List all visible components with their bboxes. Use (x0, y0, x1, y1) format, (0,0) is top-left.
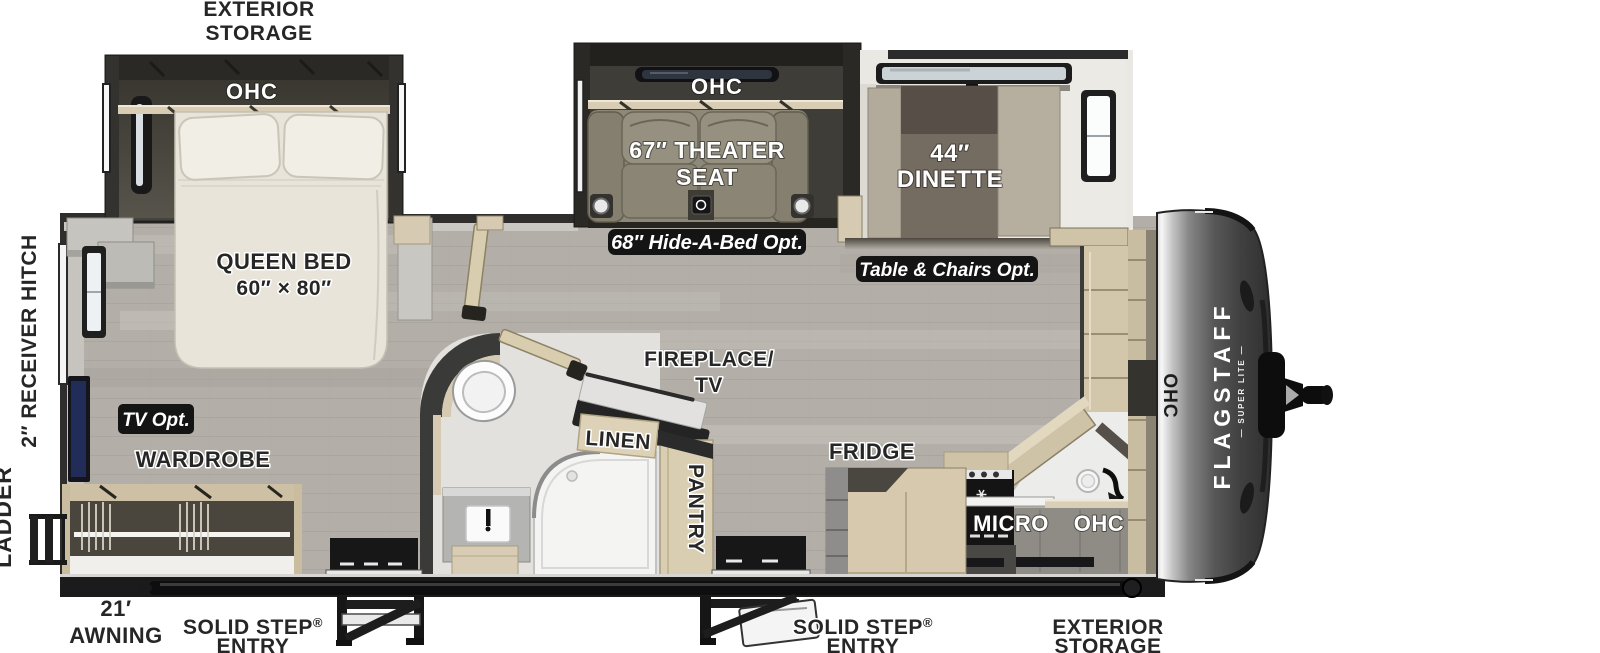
svg-text:OHC: OHC (1159, 373, 1180, 418)
svg-text:44″: 44″ (930, 140, 970, 167)
svg-text:STORAGE: STORAGE (206, 22, 313, 45)
svg-text:TV: TV (695, 374, 723, 397)
svg-text:67″ THEATER: 67″ THEATER (629, 137, 784, 163)
svg-text:FIREPLACE/: FIREPLACE/ (644, 348, 774, 371)
svg-text:EXTERIOR: EXTERIOR (203, 0, 314, 21)
svg-text:LADDER: LADDER (0, 466, 16, 568)
svg-text:MICRO: MICRO (973, 511, 1049, 536)
svg-text:60″ × 80″: 60″ × 80″ (236, 277, 331, 300)
svg-text:QUEEN BED: QUEEN BED (216, 249, 351, 274)
svg-text:OHC: OHC (226, 79, 278, 104)
svg-text:DINETTE: DINETTE (897, 166, 1003, 193)
svg-text:SEAT: SEAT (676, 164, 738, 190)
svg-text:2″ RECEIVER HITCH: 2″ RECEIVER HITCH (18, 234, 41, 447)
svg-text:LINEN: LINEN (585, 427, 652, 455)
svg-text:TV Opt.: TV Opt. (122, 410, 190, 431)
svg-text:21′: 21′ (100, 596, 131, 621)
svg-text:OHC: OHC (1074, 511, 1124, 536)
svg-text:FLAGSTAFF: FLAGSTAFF (1209, 301, 1235, 490)
svg-text:ENTRY: ENTRY (217, 635, 290, 653)
svg-text:PANTRY: PANTRY (684, 464, 707, 554)
svg-text:AWNING: AWNING (69, 623, 162, 648)
svg-text:WARDROBE: WARDROBE (136, 447, 271, 472)
svg-text:STORAGE: STORAGE (1055, 635, 1162, 653)
svg-text:Table & Chairs Opt.: Table & Chairs Opt. (859, 260, 1035, 281)
svg-text:ENTRY: ENTRY (827, 635, 900, 653)
svg-text:68″ Hide-A-Bed Opt.: 68″ Hide-A-Bed Opt. (611, 232, 803, 254)
svg-text:OHC: OHC (691, 74, 743, 99)
svg-text:— SUPER LITE —: — SUPER LITE — (1237, 345, 1246, 438)
svg-text:FRIDGE: FRIDGE (829, 439, 915, 464)
